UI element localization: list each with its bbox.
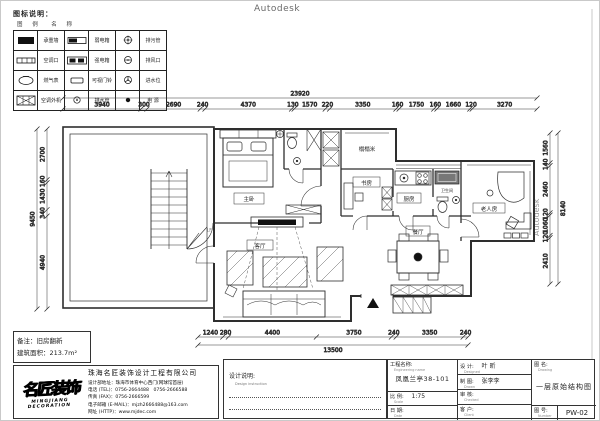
living-room (223, 217, 343, 317)
dim-label: 9450 (30, 211, 37, 226)
scale-eng: Scale (394, 400, 455, 404)
dim-label: 8140 (560, 201, 567, 216)
dim-label: 13500 (323, 347, 342, 354)
room-label-master: 主卧 (243, 195, 255, 203)
dim-label: 1570 (302, 102, 317, 109)
design-notes-label: 设计说明: (229, 373, 255, 380)
company-tel: 电话 (TEL)：0756-2664488 0756-2666588 (88, 387, 216, 394)
number-label-cell: 图 号: Number (532, 406, 558, 420)
dining (388, 226, 463, 295)
company-email: 电子邮箱 (E-MAIL)：mjzh2666488@163.com (88, 402, 216, 409)
drawing-name-cell: 图 名: Drawing 一层原始结构图 (532, 360, 596, 406)
design-notes-line (229, 398, 381, 410)
date-eng: Date (394, 414, 455, 418)
dim-label: 23920 (290, 91, 309, 98)
dim-label: 340 (40, 207, 47, 219)
scale-value: 1:75 (412, 393, 425, 400)
company-info: 珠海名匠装饰设计工程有限公司 设计部地址：珠海市体育中心西门(网球馆首层) 电话… (88, 368, 218, 417)
dim-label: 220 (322, 102, 334, 109)
dim-label: 240 (197, 102, 209, 109)
note-renovation: 备注：旧房翻新 (17, 335, 87, 347)
dim-label: 1560 (543, 140, 550, 155)
dim-label: 1430 (40, 188, 47, 203)
dim-label: 2690 (166, 102, 181, 109)
dim-label: 4940 (40, 255, 47, 270)
dim-label: 4400 (265, 330, 280, 337)
dim-label: 3270 (497, 102, 512, 109)
designer-value: 叶 昕 (482, 361, 496, 370)
company-name: 珠海名匠装饰设计工程有限公司 (88, 368, 216, 379)
room-label-elder: 老人房 (481, 205, 498, 213)
drafter-eng: Drawn (464, 385, 529, 389)
project-name-eng: Engineering name (394, 368, 455, 372)
drafter-value: 张李李 (482, 376, 500, 385)
drawing-name-value: 一层原始结构图 (534, 382, 594, 392)
dim-label: 160 (392, 102, 404, 109)
company-address: 设计部地址：珠海市体育中心西门(网球馆首层) (88, 380, 216, 387)
number-value: PW-02 (566, 409, 588, 417)
drawing-name-eng: Drawing (538, 368, 594, 372)
drafter-cell: 制 图: 张李李 Drawn (458, 375, 532, 390)
dim-label: 2700 (40, 147, 47, 162)
dim-label: 120 (543, 231, 550, 243)
dim-label: 120 (465, 102, 477, 109)
dim-label: 1750 (409, 102, 424, 109)
company-web: 网址 (HTTP)：www.mjdec.com (88, 409, 216, 416)
terrace (63, 127, 214, 308)
dimension-lines: 3940300269024043701301570220335016017501… (30, 91, 568, 355)
dim-label: 1060 (543, 217, 550, 232)
design-notes-line (229, 386, 381, 398)
design-notes-box: 设计说明: Design instruction (223, 359, 387, 419)
company-logo: 名匠装饰 MINGJIANG DECORATION (12, 373, 91, 411)
note-area: 建筑面积：213.7m² (17, 347, 87, 359)
entrance (367, 297, 431, 313)
room-label-living: 客厅 (254, 242, 266, 250)
dim-label: 3350 (422, 330, 437, 337)
dim-label: 3350 (355, 102, 370, 109)
date-cell: 日 期: Date (388, 406, 458, 420)
dim-label: 3940 (94, 102, 109, 109)
title-block: 工程名称: Engineering name 凤凰兰亭38-101 比 例: 1… (387, 359, 595, 419)
drawing-sheet: Autodesk Autodesk Autodesk 图标说明： 图 例 名 称… (0, 0, 600, 421)
dim-label: 4370 (241, 102, 256, 109)
room-label-dining: 餐厅 (412, 228, 424, 236)
dim-label: 240 (388, 330, 400, 337)
dim-label: 300 (138, 102, 150, 109)
floor-mark: 1F (206, 228, 212, 234)
dim-label: 3750 (346, 330, 361, 337)
designer-eng: Designed (464, 370, 529, 374)
notes-box: 备注：旧房翻新 建筑面积：213.7m² (13, 331, 91, 363)
dim-label: 240 (460, 330, 472, 337)
company-box: 名匠装饰 MINGJIANG DECORATION 珠海名匠装饰设计工程有限公司… (13, 365, 219, 419)
stairs (151, 169, 213, 249)
client-eng: Client (464, 413, 529, 417)
design-notes-line (229, 410, 381, 421)
project-name-cell: 工程名称: Engineering name 凤凰兰亭38-101 (388, 360, 458, 392)
designer-cell: 设 计: 叶 昕 Designed (458, 360, 532, 375)
dim-label: 2460 (543, 181, 550, 196)
dim-label: 160 (430, 102, 442, 109)
room-label-kitchen: 厨房 (403, 195, 415, 203)
client-cell: 客 户: Client (458, 405, 532, 420)
room-label-tatami: 榻榻米 (359, 145, 376, 153)
master-bathroom (287, 129, 321, 165)
dim-label: 140 (543, 158, 550, 170)
dim-label: 1240 (203, 330, 218, 337)
elder-room (467, 165, 531, 238)
dim-label: 1660 (446, 102, 461, 109)
floor-plan: 主卧 客厅 餐厅 厨房 书房 榻榻米 卫生间 老人房 1F 3940300269… (30, 9, 593, 419)
dim-label: 2410 (543, 253, 550, 268)
number-eng: Number (538, 414, 555, 418)
checker-eng: Checked (464, 398, 529, 402)
dim-label: 130 (287, 102, 299, 109)
dim-label: 280 (220, 330, 232, 337)
company-fax: 传真 (FAX)：0756-2666599 (88, 394, 216, 401)
project-name-value: 凤凰兰亭38-101 (390, 373, 455, 383)
number-value-cell: PW-02 (558, 406, 596, 420)
room-label-bathroom: 卫生间 (441, 187, 453, 193)
dim-label: 160 (40, 175, 47, 187)
checker-cell: 审 核: Checked (458, 390, 532, 405)
room-label-study: 书房 (361, 179, 373, 187)
scale-cell: 比 例: 1:75 Scale (388, 392, 458, 406)
